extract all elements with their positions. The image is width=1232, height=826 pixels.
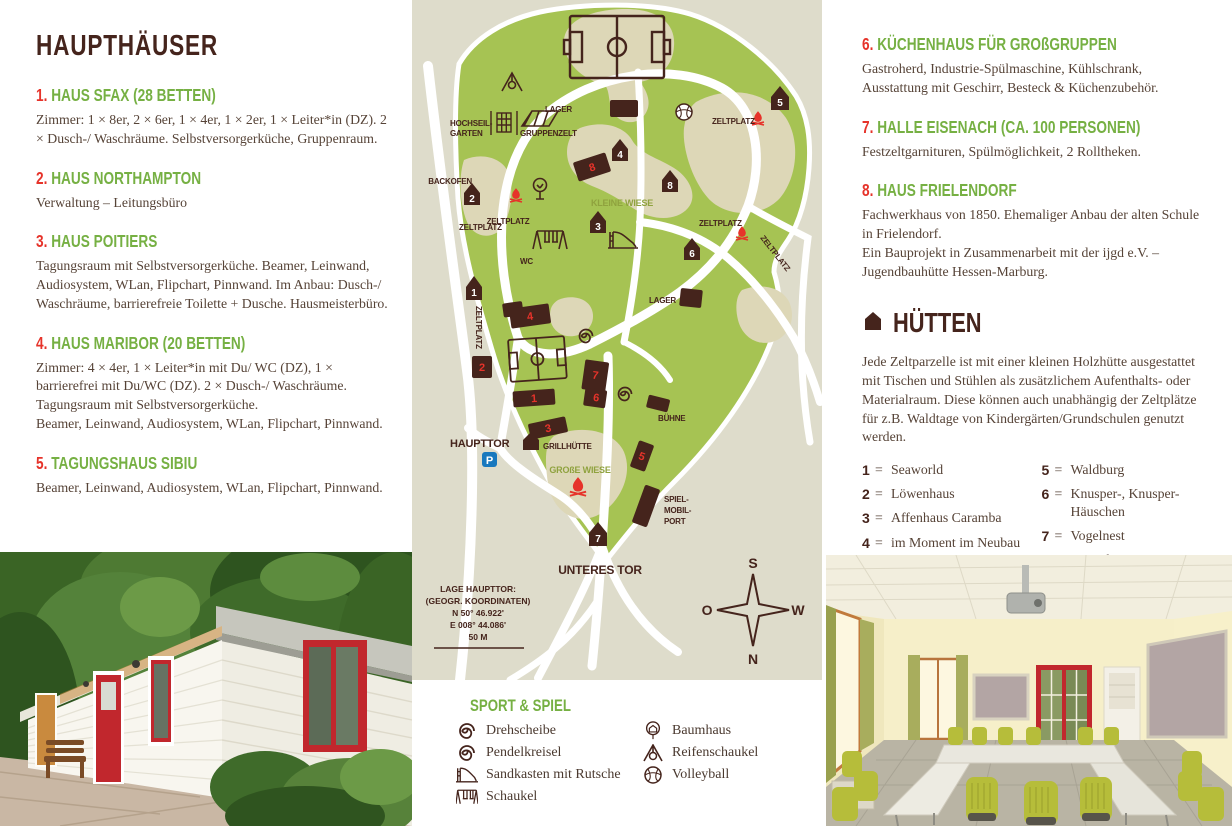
item-title: HAUS SFAX (28 BETTEN) xyxy=(51,85,216,105)
right-column: 6. KÜCHENHAUS FÜR GROßGRUPPEN Gastroherd… xyxy=(862,34,1207,575)
item-body: Tagungsraum mit Selbstversorgerküche. Be… xyxy=(36,257,398,313)
svg-text:GROßE WIESE: GROßE WIESE xyxy=(549,465,611,475)
svg-text:N 50° 46.922': N 50° 46.922' xyxy=(452,608,504,618)
item-title: TAGUNGSHAUS SIBIU xyxy=(51,453,197,473)
lamp xyxy=(132,660,140,668)
svg-text:ZELTPLATZ: ZELTPLATZ xyxy=(474,306,483,349)
curtain xyxy=(908,655,920,745)
svg-text:HOCHSEIL-: HOCHSEIL- xyxy=(450,119,493,128)
item-number: 3. xyxy=(36,231,47,251)
lamp xyxy=(83,681,89,687)
svg-text:E 008° 44.086': E 008° 44.086' xyxy=(450,620,506,630)
house-item-2: 2. HAUS NORTHAMPTON Verwaltung – Leitung… xyxy=(36,168,398,213)
tire-swing-icon xyxy=(642,743,664,763)
svg-text:50 M: 50 M xyxy=(469,632,488,642)
hut-entry: 5=Waldburg xyxy=(1042,461,1208,479)
hut-name: Waldburg xyxy=(1071,461,1125,479)
side-door xyxy=(36,694,56,766)
svg-text:2: 2 xyxy=(479,362,485,374)
svg-text:ZELTPLATZ: ZELTPLATZ xyxy=(699,219,742,228)
svg-text:LAGER: LAGER xyxy=(649,296,676,305)
item-title: HALLE EISENACH (CA. 100 PERSONEN) xyxy=(877,117,1140,137)
item-body: Verwaltung – Leitungsbüro xyxy=(36,194,398,213)
pinboard xyxy=(1148,631,1226,737)
house-item-5: 5. TAGUNGSHAUS SIBIU Beamer, Leinwand, A… xyxy=(36,453,398,498)
item-number: 1. xyxy=(36,85,47,105)
coordinates-block: LAGE HAUPTTOR: (GEOGR. KOORDINATEN) N 50… xyxy=(426,584,531,648)
item-title: HAUS FRIELENDORF xyxy=(877,180,1017,200)
hut-entry: 1=Seaworld xyxy=(862,461,1028,479)
hut-name: Vogelnest xyxy=(1071,527,1125,545)
item-body: Fachwerkhaus von 1850. Ehemaliger Anbau … xyxy=(862,206,1207,281)
svg-text:GARTEN: GARTEN xyxy=(450,129,483,138)
hut-entry: 2=Löwenhaus xyxy=(862,485,1028,503)
house-item-6: 6. KÜCHENHAUS FÜR GROßGRUPPEN Gastroherd… xyxy=(862,34,1207,98)
svg-text:5: 5 xyxy=(777,98,783,109)
house-icon xyxy=(862,307,884,339)
svg-text:LAGE HAUPTTOR:: LAGE HAUPTTOR: xyxy=(440,584,516,594)
hut-entry: 4=im Moment im Neubau xyxy=(862,534,1028,552)
item-title: HAUS NORTHAMPTON xyxy=(51,168,201,188)
hut-name: Löwenhaus xyxy=(891,485,955,503)
svg-text:MOBIL-: MOBIL- xyxy=(664,506,692,515)
legend-item: Pendelkreisel xyxy=(456,742,621,764)
photo-seminar-room xyxy=(826,555,1232,826)
parking-icon: P xyxy=(482,452,497,467)
svg-text:2: 2 xyxy=(469,194,475,205)
legend-sport-spiel: SPORT & SPIEL Drehscheibe Pendelkreisel … xyxy=(412,680,822,826)
lager-building xyxy=(610,100,638,117)
curtain xyxy=(860,619,874,751)
hut-name: Knusper-, Knusper-Häuschen xyxy=(1071,485,1208,521)
item-body: Zimmer: 1 × 8er, 2 × 6er, 1 × 4er, 1 × 2… xyxy=(36,111,398,149)
hut-entry: 7=Vogelnest xyxy=(1042,527,1208,545)
item-body: Zimmer: 4 × 4er, 1 × Leiter*in mit Du/ W… xyxy=(36,359,398,434)
svg-text:O: O xyxy=(702,602,713,618)
legend-item: Drehscheibe xyxy=(456,720,621,742)
curtain xyxy=(826,605,836,783)
legend-item: Volleyball xyxy=(642,764,758,786)
lager-building xyxy=(679,288,703,308)
svg-text:ZELTPLATZ: ZELTPLATZ xyxy=(459,223,502,232)
svg-text:3: 3 xyxy=(595,222,601,233)
svg-text:1: 1 xyxy=(471,288,477,299)
svg-text:7: 7 xyxy=(595,534,601,545)
page-title: HAUPTHÄUSER xyxy=(36,30,398,63)
house-item-4: 4. HAUS MARIBOR (20 BETTEN) Zimmer: 4 × … xyxy=(36,333,398,434)
hut-name: Affenhaus Caramba xyxy=(891,509,1001,527)
svg-text:S: S xyxy=(748,555,757,571)
house-item-3: 3. HAUS POITIERS Tagungsraum mit Selbstv… xyxy=(36,231,398,313)
compass-rose: S O W N xyxy=(702,555,806,667)
legend-item: Sandkasten mit Rutsche xyxy=(456,764,621,786)
svg-text:BÜHNE: BÜHNE xyxy=(658,414,686,423)
svg-text:ZELTPLATZ: ZELTPLATZ xyxy=(712,117,755,126)
svg-text:4: 4 xyxy=(617,150,623,161)
photo-building-exterior xyxy=(0,552,412,826)
item-number: 8. xyxy=(862,180,873,200)
item-body: Festzeltgarnituren, Spülmöglichkeit, 2 R… xyxy=(862,143,1207,162)
legend-item: Baumhaus xyxy=(642,720,758,742)
legend-item: Schaukel xyxy=(456,786,621,808)
svg-text:SPIEL-: SPIEL- xyxy=(664,495,689,504)
house-item-7: 7. HALLE EISENACH (CA. 100 PERSONEN) Fes… xyxy=(862,117,1207,162)
legend-item: Reifenschaukel xyxy=(642,742,758,764)
svg-text:KLEINE WIESE: KLEINE WIESE xyxy=(591,198,653,208)
svg-text:N: N xyxy=(748,651,758,667)
slide-icon xyxy=(456,765,478,785)
left-column: HAUPTHÄUSER 1. HAUS SFAX (28 BETTEN) Zim… xyxy=(36,30,398,516)
item-body: Beamer, Leinwand, Audiosystem, WLan, Fli… xyxy=(36,479,398,498)
swing-icon xyxy=(456,787,478,807)
site-map-svg: 1 2 3 4 5 76 8 1 2 3 4 5 6 7 8 P HOCHSEI… xyxy=(412,0,822,680)
svg-text:1: 1 xyxy=(531,393,538,405)
svg-text:(GEOGR. KOORDINATEN): (GEOGR. KOORDINATEN) xyxy=(426,596,531,606)
svg-text:LAGER: LAGER xyxy=(545,105,572,114)
item-number: 7. xyxy=(862,117,873,137)
item-title: HAUS POITIERS xyxy=(51,231,157,251)
item-body: Gastroherd, Industrie-Spülmaschine, Kühl… xyxy=(862,60,1207,98)
svg-text:6: 6 xyxy=(689,249,695,260)
hut-entry: 6=Knusper-, Knusper-Häuschen xyxy=(1042,485,1208,521)
item-number: 2. xyxy=(36,168,47,188)
volleyball-icon xyxy=(676,104,692,120)
svg-text:GRILLHÜTTE: GRILLHÜTTE xyxy=(543,442,593,451)
svg-text:HAUPTTOR: HAUPTTOR xyxy=(450,438,510,450)
svg-text:W: W xyxy=(791,602,805,618)
hut-entry: 3=Affenhaus Caramba xyxy=(862,509,1028,527)
item-number: 5. xyxy=(36,453,47,473)
svg-text:8: 8 xyxy=(667,181,673,192)
legend-title: SPORT & SPIEL xyxy=(470,696,599,716)
svg-text:P: P xyxy=(486,455,493,467)
svg-text:BACKOFEN: BACKOFEN xyxy=(428,177,472,186)
hut-name: Seaworld xyxy=(891,461,943,479)
huetten-intro: Jede Zeltparzelle ist mit einer kleinen … xyxy=(862,353,1207,447)
site-map: 1 2 3 4 5 76 8 1 2 3 4 5 6 7 8 P HOCHSEI… xyxy=(412,0,822,680)
item-number: 6. xyxy=(862,34,873,54)
svg-text:UNTERES TOR: UNTERES TOR xyxy=(558,563,642,577)
treehouse-icon xyxy=(642,721,664,741)
house-item-1: 1. HAUS SFAX (28 BETTEN) Zimmer: 1 × 8er… xyxy=(36,85,398,149)
item-title: KÜCHENHAUS FÜR GROßGRUPPEN xyxy=(877,34,1117,54)
item-number: 4. xyxy=(36,333,47,353)
pinboard xyxy=(974,675,1028,719)
svg-text:PORT: PORT xyxy=(664,517,686,526)
item-title: HAUS MARIBOR (20 BETTEN) xyxy=(51,333,245,353)
spiral-icon xyxy=(456,743,478,763)
spiral-icon xyxy=(456,721,478,741)
house-item-8: 8. HAUS FRIELENDORF Fachwerkhaus von 185… xyxy=(862,180,1207,281)
hut-name: im Moment im Neubau xyxy=(891,534,1020,552)
svg-text:GRUPPENZELT: GRUPPENZELT xyxy=(520,129,577,138)
huetten-title: HÜTTEN xyxy=(862,307,1207,339)
svg-text:WC: WC xyxy=(520,257,533,266)
volleyball-icon xyxy=(642,765,664,785)
